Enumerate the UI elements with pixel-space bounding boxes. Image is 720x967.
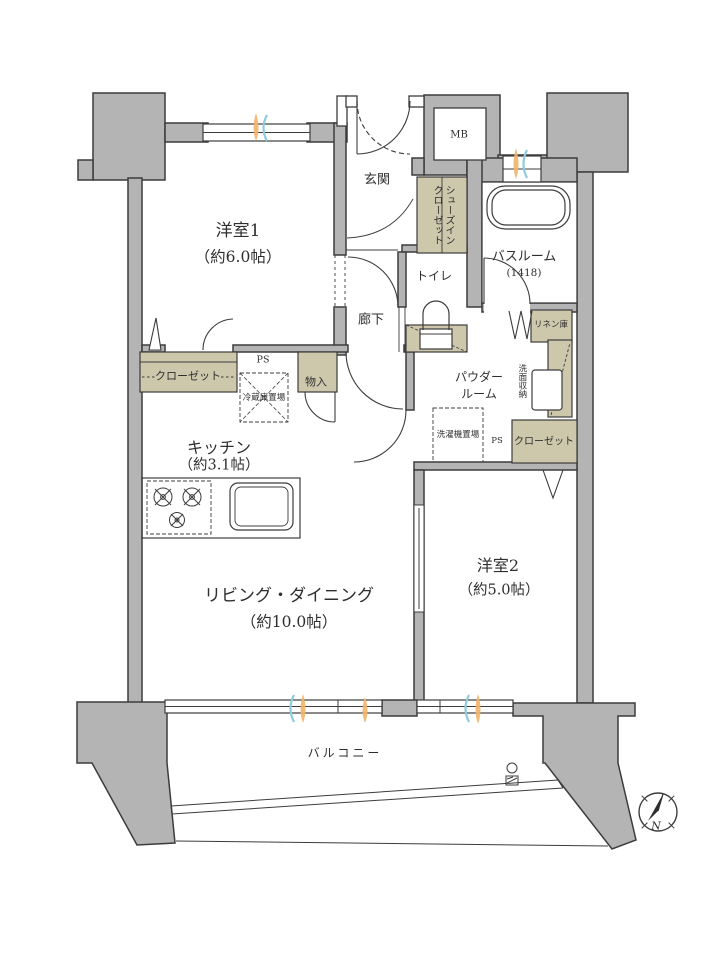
powder-door-swing: [354, 410, 406, 462]
kitchen-label: キッチン: [187, 439, 251, 457]
entrance-door-swing: [357, 101, 410, 154]
entrance-label: 玄関: [364, 174, 390, 189]
balcony-label: バルコニー: [308, 747, 383, 761]
sink: [230, 483, 293, 530]
washer-space-label: 洗濯機置場: [437, 431, 480, 441]
living-dining-label: リビング・ダイニング: [204, 587, 374, 607]
west-wall: [128, 178, 142, 704]
stove-burners: [154, 488, 201, 528]
shoes-closet-label: シューズイン クローゼット: [430, 177, 454, 253]
toilet-label: トイレ: [416, 270, 452, 284]
entrance-step-line: [347, 199, 413, 238]
balcony-railing: [171, 763, 608, 846]
powder-room-label-2: ルーム: [461, 388, 497, 402]
washstand-storage-label: 洗面収納: [516, 359, 526, 403]
north-label: N: [651, 821, 661, 834]
closet1-label: クローゼット: [155, 371, 221, 384]
balcony-drain: [507, 763, 517, 773]
toilet-tank: [420, 329, 452, 349]
pillar-top-left: [93, 93, 165, 180]
bedroom1-door-swing: [203, 319, 233, 350]
closet2-label: クローゼット: [514, 436, 574, 448]
cabinet-label: 物入: [305, 377, 327, 390]
kitchen-size: （約3.1帖）: [178, 458, 259, 475]
pipe-space-label-2: PS: [491, 437, 503, 447]
closet2-folding-door: [543, 470, 563, 498]
bathroom-label: バスルーム: [492, 251, 557, 266]
bedroom1-size: （約6.0帖）: [195, 249, 282, 267]
washbasin: [532, 370, 562, 410]
vent-orange-icon: [476, 694, 481, 724]
cabinet-door-swing: [305, 392, 335, 422]
meter-box-label: MB: [450, 129, 468, 141]
pillar-bottom-left: [77, 702, 175, 845]
vent-orange-icon: [301, 694, 306, 723]
bathroom-size: (1418): [507, 267, 542, 279]
east-wall: [577, 172, 593, 703]
powder-room-label-1: パウダー: [455, 371, 503, 385]
bedroom2-label: 洋室2: [477, 557, 519, 575]
hallway-label: 廊下: [358, 314, 384, 329]
linen-label: リネン庫: [534, 321, 568, 331]
north-needle: [648, 794, 663, 821]
pipe-space-label-1: PS: [257, 356, 270, 367]
bedroom1-door-leaf: [149, 318, 161, 350]
refrigerator-label: 冷蔵庫置場: [243, 394, 286, 404]
floor-plan-drawing: [0, 0, 720, 967]
living-dining-size: （約10.0帖）: [241, 614, 338, 632]
bedroom1-label: 洋室1: [216, 222, 261, 242]
floor-plan: 洋室1 （約6.0帖） 玄関 MB シューズイン クローゼット バスルーム (1…: [0, 0, 720, 967]
bathroom-floor: [482, 182, 577, 303]
bedroom2-size: （約5.0帖）: [458, 583, 539, 600]
linen-folding-door: [509, 311, 532, 339]
stove: [147, 481, 211, 534]
hall-living-door-swing: [346, 352, 403, 409]
bedroom1-hall-door-swing: [348, 257, 398, 307]
pillar-bottom-right: [513, 703, 636, 849]
